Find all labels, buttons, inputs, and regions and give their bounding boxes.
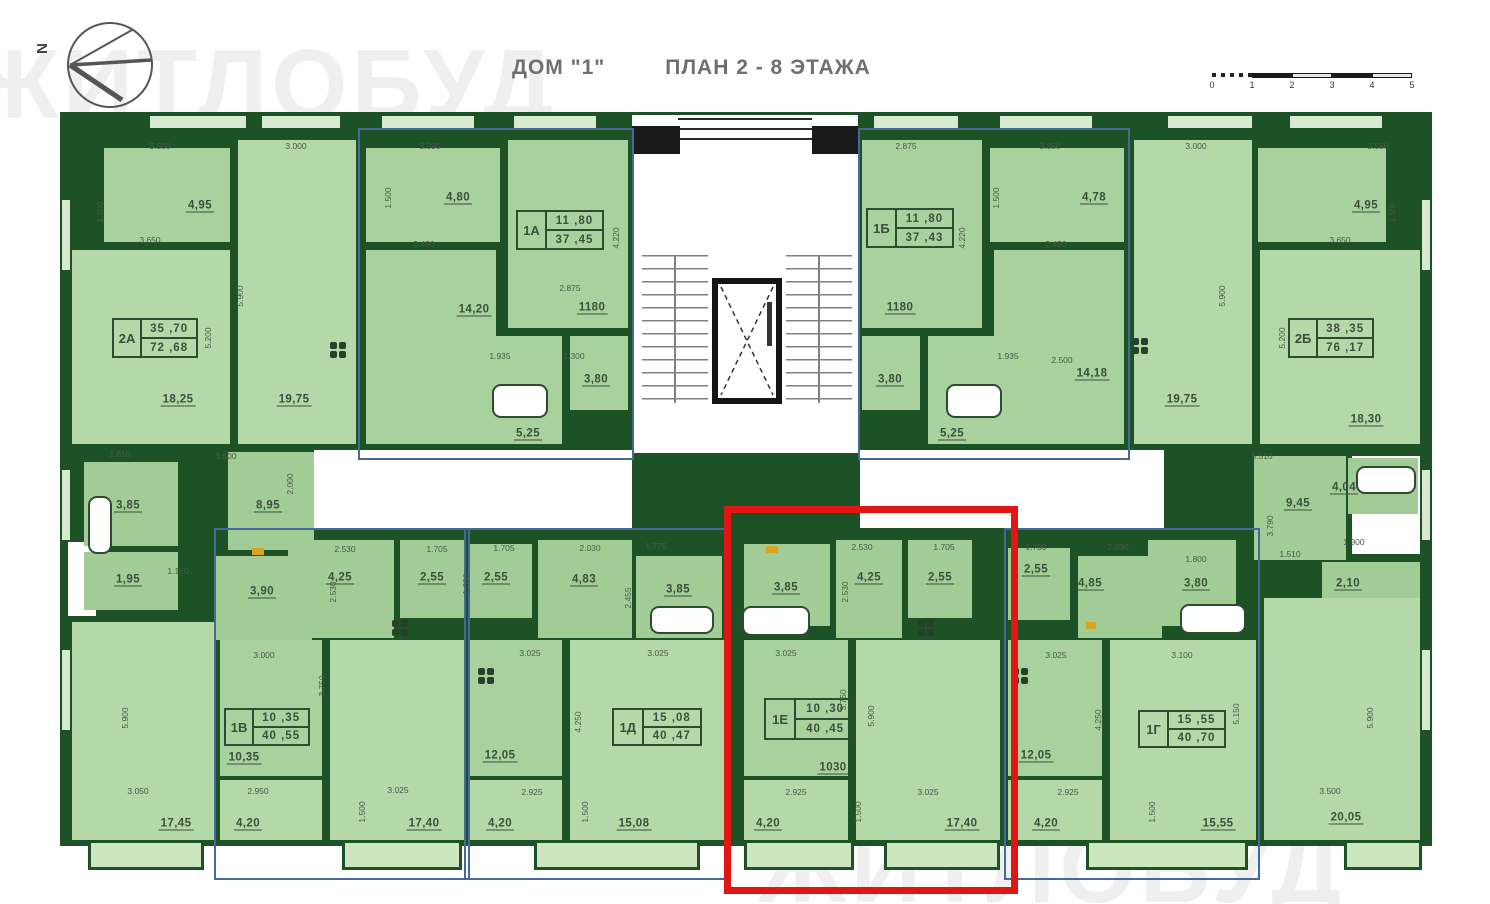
room-area-label: 2,55 — [482, 572, 510, 585]
apartment-table-1d: 1Д 15 ,08 40 ,47 — [612, 708, 702, 746]
room-area-label: 1,95 — [114, 574, 142, 587]
room-area-label: 5,25 — [938, 428, 966, 441]
dimension-label: 4.220 — [957, 227, 967, 248]
window — [382, 116, 474, 128]
dimension-label: 1.500 — [1387, 201, 1397, 222]
house-label: ДОМ "1" — [512, 56, 605, 80]
dimension-label: 3.550 — [149, 141, 170, 151]
window — [1168, 116, 1252, 128]
floor-plan-page: ЖИТЛОБУД ЖИТЛОБУД N ДОМ "1" ПЛАН 2 - 8 Э… — [0, 0, 1490, 904]
dimension-label: 1.500 — [95, 201, 105, 222]
room-area-label: 17,45 — [159, 818, 194, 831]
dimension-label: 1.935 — [997, 351, 1018, 361]
dimension-label: 1.500 — [383, 187, 393, 208]
room-area-label: 2,55 — [418, 572, 446, 585]
dimension-label: 3.390 — [419, 141, 440, 151]
window — [1422, 200, 1430, 270]
window — [150, 116, 246, 128]
dimension-label: 4.250 — [573, 711, 583, 732]
dimension-label: 3.350 — [1039, 141, 1060, 151]
room-area-label: 4,20 — [486, 818, 514, 831]
window — [62, 650, 70, 730]
room-area-label: 3,80 — [1182, 578, 1210, 591]
room-area-label: 4,78 — [1080, 192, 1108, 205]
stove-icon — [392, 620, 408, 636]
room-area-label: 4,80 — [444, 192, 472, 205]
dimension-label: 3.050 — [127, 786, 148, 796]
total-area: 72 ,68 — [142, 339, 196, 356]
room-area-label: 14,18 — [1075, 368, 1110, 381]
dimension-label: 2.500 — [1051, 355, 1072, 365]
scale-segment — [1252, 73, 1292, 78]
apartment-code: 1Б — [868, 210, 897, 246]
plan-label: ПЛАН 2 - 8 ЭТАЖА — [665, 56, 871, 80]
window — [874, 116, 958, 128]
balcony-railing-icon — [678, 118, 812, 146]
bathtub-icon — [650, 606, 714, 634]
room-area-label: 3,80 — [582, 374, 610, 387]
room-area-label: 15,55 — [1201, 818, 1236, 831]
room-area-label: 12,05 — [483, 750, 518, 763]
scale-tick: 1 — [1249, 80, 1254, 90]
radiator-icon — [1086, 622, 1096, 629]
dimension-label: 2.950 — [247, 786, 268, 796]
room-area-label: 5,25 — [514, 428, 542, 441]
window — [1422, 650, 1430, 730]
dimension-label: 3.650 — [1329, 235, 1350, 245]
dimension-label: 3.025 — [387, 785, 408, 795]
dimension-label: 1.300 — [563, 351, 584, 361]
living-area: 15 ,55 — [1169, 712, 1224, 730]
room-area-label: 8,95 — [254, 500, 282, 513]
dimension-label: 2.530 — [334, 544, 355, 554]
bathtub-icon — [88, 496, 112, 554]
dimension-label: 1.700 — [1025, 542, 1046, 552]
window — [262, 116, 340, 128]
total-area: 76 ,17 — [1318, 339, 1372, 356]
room-area-label: 4,20 — [1032, 818, 1060, 831]
window — [62, 470, 70, 540]
bathtub-icon — [1356, 466, 1416, 494]
dimension-label: 3.550 — [1367, 141, 1388, 151]
dimension-label: 3.100 — [1171, 650, 1192, 660]
dimension-label: 3.025 — [647, 648, 668, 658]
dimension-label: 3.025 — [519, 648, 540, 658]
bathtub-icon — [492, 384, 548, 418]
window — [62, 200, 70, 270]
north-compass-icon — [52, 10, 162, 120]
page-title: ДОМ "1" ПЛАН 2 - 8 ЭТАЖА — [512, 56, 871, 80]
dimension-label: 3.600 — [215, 451, 236, 461]
room — [104, 148, 230, 242]
stove-icon — [478, 668, 494, 684]
scale-bar: 0 1 2 3 4 5 — [1212, 72, 1428, 94]
dimension-label: 1.900 — [1343, 537, 1364, 547]
dimension-label: 3.000 — [253, 650, 274, 660]
window — [1422, 470, 1430, 540]
dimension-label: 2.450 — [1045, 239, 1066, 249]
room-area-label: 14,20 — [457, 304, 492, 317]
scale-segment — [1332, 73, 1372, 78]
dimension-label: 3.790 — [1265, 515, 1275, 536]
dimension-label: 1.500 — [991, 187, 1001, 208]
apartment-zone-1e-highlight[interactable] — [724, 506, 1018, 894]
living-area: 11 ,80 — [547, 212, 602, 231]
dimension-label: 1.775 — [645, 541, 666, 551]
window — [1290, 116, 1382, 128]
scale-tick: 0 — [1209, 80, 1214, 90]
apartment-table-1v: 1В 10 ,35 40 ,55 — [224, 708, 310, 746]
window — [1000, 116, 1092, 128]
dimension-label: 3.025 — [1045, 650, 1066, 660]
scale-segment — [1292, 73, 1332, 78]
room-area-label: 17,40 — [407, 818, 442, 831]
stove-icon — [330, 342, 346, 358]
scale-segment — [1372, 73, 1412, 78]
apartment-table-1g: 1Г 15 ,55 40 ,70 — [1138, 710, 1226, 748]
living-area: 15 ,08 — [644, 710, 700, 728]
room-area-label: 2,55 — [1022, 564, 1050, 577]
apartment-code: 1Г — [1140, 712, 1169, 746]
room-area-label: 19,75 — [277, 394, 312, 407]
dimension-label: 5.900 — [120, 707, 130, 728]
dimension-label: 2.925 — [1057, 787, 1078, 797]
wall-block — [632, 126, 680, 154]
apartment-table-1a: 1А 11 ,80 37 ,45 — [516, 210, 604, 250]
room-area-label: 18,30 — [1349, 414, 1384, 427]
dimension-label: 4.220 — [611, 227, 621, 248]
scale-tick: 2 — [1289, 80, 1294, 90]
dimension-label: 5.150 — [1231, 703, 1241, 724]
room-area-label: 4,83 — [570, 574, 598, 587]
dimension-label: 2.030 — [1107, 542, 1128, 552]
dimension-label: 3.000 — [1185, 141, 1206, 151]
room-area-label: 19,75 — [1165, 394, 1200, 407]
balcony — [1344, 840, 1422, 870]
room-area-label: 12,05 — [1019, 750, 1054, 763]
scale-ticks: 0 1 2 3 4 5 — [1212, 80, 1428, 94]
dimension-label: 3.750 — [317, 675, 327, 696]
dimension-label: 3.650 — [139, 235, 160, 245]
room-area-label: 2,10 — [1334, 578, 1362, 591]
scale-segment — [1212, 73, 1252, 77]
room-area-label: 3,85 — [114, 500, 142, 513]
dimension-label: 2.000 — [285, 473, 295, 494]
room-area-label: 4,04 — [1330, 482, 1358, 495]
scale-tick: 4 — [1369, 80, 1374, 90]
radiator-icon — [252, 548, 264, 555]
dimension-label: 3.500 — [1319, 786, 1340, 796]
dimension-label: 1.500 — [1147, 801, 1157, 822]
total-area: 37 ,45 — [547, 231, 602, 248]
living-area: 35 ,70 — [142, 320, 196, 339]
dimension-label: 1.705 — [493, 543, 514, 553]
dimension-label: 1.500 — [357, 801, 367, 822]
north-label: N — [33, 43, 50, 54]
room-area-label: 3,90 — [248, 586, 276, 599]
total-area: 40 ,70 — [1169, 730, 1224, 746]
stove-icon — [1132, 338, 1148, 354]
room-area-label: 1180 — [577, 302, 608, 315]
dimension-label: 2.875 — [895, 141, 916, 151]
living-area: 38 ,35 — [1318, 320, 1372, 339]
dimension-label: 2.455 — [623, 587, 633, 608]
apartment-table-2a: 2А 35 ,70 72 ,68 — [112, 318, 198, 358]
room-area-label: 3,85 — [664, 584, 692, 597]
scale-tick: 3 — [1329, 80, 1334, 90]
dimension-label: 1.705 — [426, 544, 447, 554]
total-area: 40 ,47 — [644, 728, 700, 744]
dimension-label: 5.900 — [1217, 285, 1227, 306]
room-area-label: 4,20 — [234, 818, 262, 831]
dimension-label: 1.500 — [580, 801, 590, 822]
dimension-label: 1.935 — [489, 351, 510, 361]
room — [1264, 598, 1420, 840]
corridor — [314, 450, 632, 528]
room-area-label: 20,05 — [1329, 812, 1364, 825]
apartment-code: 2А — [114, 320, 142, 356]
apartment-code: 2Б — [1290, 320, 1318, 356]
dimension-label: 2.925 — [521, 787, 542, 797]
dimension-label: 5.510 — [1251, 451, 1272, 461]
total-area: 40 ,55 — [254, 728, 308, 744]
apartment-table-1b: 1Б 11 ,80 37 ,43 — [866, 208, 954, 248]
apartment-code: 1Д — [614, 710, 644, 744]
bathtub-icon — [946, 384, 1002, 418]
room-area-label: 10,35 — [227, 752, 262, 765]
dimension-label: 1.510 — [1279, 549, 1300, 559]
scale-bar-line — [1212, 72, 1428, 78]
dimension-label: 5.200 — [203, 327, 213, 348]
dimension-label: 5.200 — [1277, 327, 1287, 348]
room-area-label: 18,25 — [161, 394, 196, 407]
apartment-table-2b: 2Б 38 ,35 76 ,17 — [1288, 318, 1374, 358]
dimension-label: 1.600 — [461, 573, 471, 594]
stairs-divider — [818, 255, 820, 403]
living-area: 10 ,35 — [254, 710, 308, 728]
room-area-label: 3,80 — [876, 374, 904, 387]
scale-tick: 5 — [1409, 80, 1414, 90]
dimension-label: 2.030 — [579, 543, 600, 553]
balcony — [88, 840, 204, 870]
living-area: 11 ,80 — [897, 210, 952, 229]
dimension-label: 4.250 — [1093, 709, 1103, 730]
bathtub-icon — [1180, 604, 1246, 634]
window — [514, 116, 596, 128]
dimension-label: 3.490 — [413, 239, 434, 249]
wall-block — [812, 126, 858, 154]
room-area-label: 4,95 — [1352, 200, 1380, 213]
elevator-counterweight — [767, 302, 772, 346]
apartment-code: 1А — [518, 212, 547, 248]
elevator-icon — [712, 278, 782, 404]
room-area-label: 4,95 — [186, 200, 214, 213]
dimension-label: 2.530 — [328, 581, 338, 602]
room-area-label: 9,45 — [1284, 498, 1312, 511]
dimension-label: 1.800 — [1185, 554, 1206, 564]
stairs-divider — [674, 255, 676, 403]
dimension-label: 1.610 — [109, 449, 130, 459]
total-area: 37 ,43 — [897, 229, 952, 246]
room-area-label: 4,85 — [1076, 578, 1104, 591]
dimension-label: 5.900 — [235, 285, 245, 306]
apartment-code: 1В — [226, 710, 254, 744]
room — [72, 622, 214, 840]
room-area-label: 15,08 — [617, 818, 652, 831]
room — [1258, 148, 1386, 242]
dimension-label: 5.900 — [1365, 707, 1375, 728]
dimension-label: 1.150 — [167, 566, 188, 576]
dimension-label: 3.000 — [285, 141, 306, 151]
room-area-label: 1180 — [885, 302, 916, 315]
dimension-label: 2.875 — [559, 283, 580, 293]
